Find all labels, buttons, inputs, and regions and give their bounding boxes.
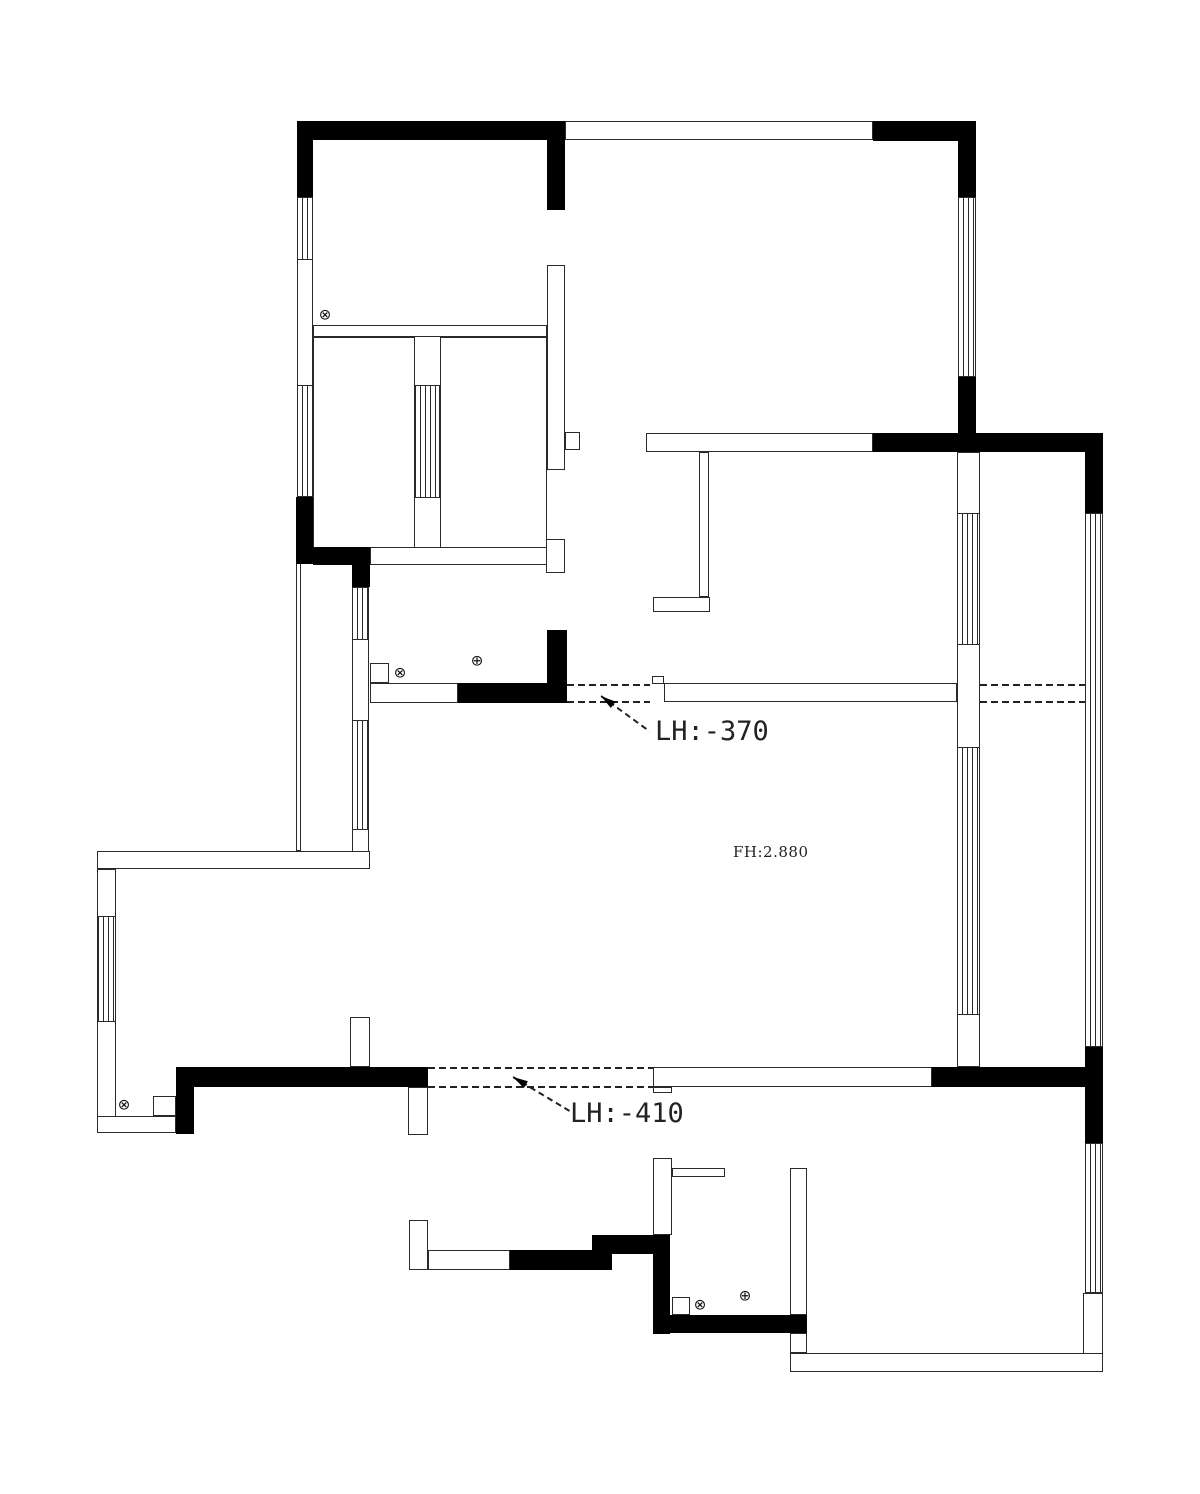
opening-dashed-line <box>980 684 1085 686</box>
wall-solid <box>670 1315 807 1333</box>
wall <box>296 563 301 851</box>
window <box>957 513 980 645</box>
wall <box>790 1353 1103 1372</box>
window <box>1085 513 1103 1047</box>
wall <box>565 121 873 140</box>
window <box>415 385 440 498</box>
drain-symbol: ⊗ <box>118 1098 131 1113</box>
wall-solid <box>297 140 313 197</box>
wall <box>790 1333 807 1353</box>
opening-dashed-line <box>428 1086 653 1088</box>
drain-symbol: ⊗ <box>319 308 332 323</box>
wall <box>672 1297 690 1315</box>
wall <box>546 539 565 573</box>
wall <box>653 1067 932 1087</box>
wall <box>97 1116 176 1133</box>
wall-solid <box>932 1067 1103 1087</box>
wall-solid <box>653 1254 670 1334</box>
wall <box>153 1096 176 1116</box>
wall <box>408 1087 428 1135</box>
wall <box>653 597 710 612</box>
floor-height-annotation: FH:2.880 <box>733 843 808 861</box>
wall-solid <box>873 433 1103 452</box>
opening-dashed-line <box>567 684 650 686</box>
wall <box>699 452 709 597</box>
wall <box>313 337 415 548</box>
wall <box>652 676 664 684</box>
wall <box>350 1017 370 1067</box>
wall-solid <box>958 377 976 433</box>
wall-solid <box>873 121 976 141</box>
window <box>98 916 116 1022</box>
wall-solid <box>510 1250 612 1270</box>
riser-symbol: ⊕ <box>471 654 484 669</box>
wall-solid <box>547 630 567 683</box>
wall <box>313 325 547 337</box>
wall <box>409 1220 428 1270</box>
wall-solid <box>297 121 565 140</box>
wall <box>370 547 547 565</box>
wall-solid <box>1085 452 1103 513</box>
level-annotation-lower: LH:-410 <box>570 1098 684 1129</box>
wall-solid <box>313 547 370 565</box>
drain-symbol: ⊗ <box>394 666 407 681</box>
wall <box>790 1168 807 1315</box>
wall-solid <box>547 140 565 210</box>
window <box>352 720 369 830</box>
wall <box>646 433 873 452</box>
riser-symbol: ⊕ <box>739 1289 752 1304</box>
window <box>297 385 313 497</box>
wall <box>672 1168 725 1177</box>
level-annotation-upper: LH:-370 <box>655 716 769 747</box>
wall <box>565 432 580 450</box>
window <box>958 197 976 377</box>
wall <box>370 683 458 703</box>
wall-solid <box>352 565 370 587</box>
wall <box>664 683 957 702</box>
wall <box>653 1158 672 1235</box>
window <box>957 747 980 1015</box>
floor-plan-canvas: LH:-370 LH:-410 FH:2.880 ⊗⊗⊕⊗⊗⊕ <box>0 0 1200 1494</box>
wall <box>370 663 389 683</box>
wall-solid <box>194 1067 428 1087</box>
wall <box>653 1087 672 1093</box>
wall-solid <box>958 141 976 197</box>
window <box>1085 1143 1103 1293</box>
wall-solid <box>296 497 313 564</box>
opening-dashed-line <box>428 1067 653 1069</box>
wall-solid <box>458 683 567 703</box>
wall <box>97 851 370 869</box>
wall <box>440 337 547 548</box>
wall-solid <box>176 1067 194 1134</box>
wall <box>428 1250 510 1270</box>
drain-symbol: ⊗ <box>694 1298 707 1313</box>
opening-dashed-line <box>980 701 1085 703</box>
window <box>352 587 369 640</box>
wall <box>547 265 565 470</box>
wall-solid <box>1085 1047 1103 1143</box>
window <box>297 197 313 260</box>
